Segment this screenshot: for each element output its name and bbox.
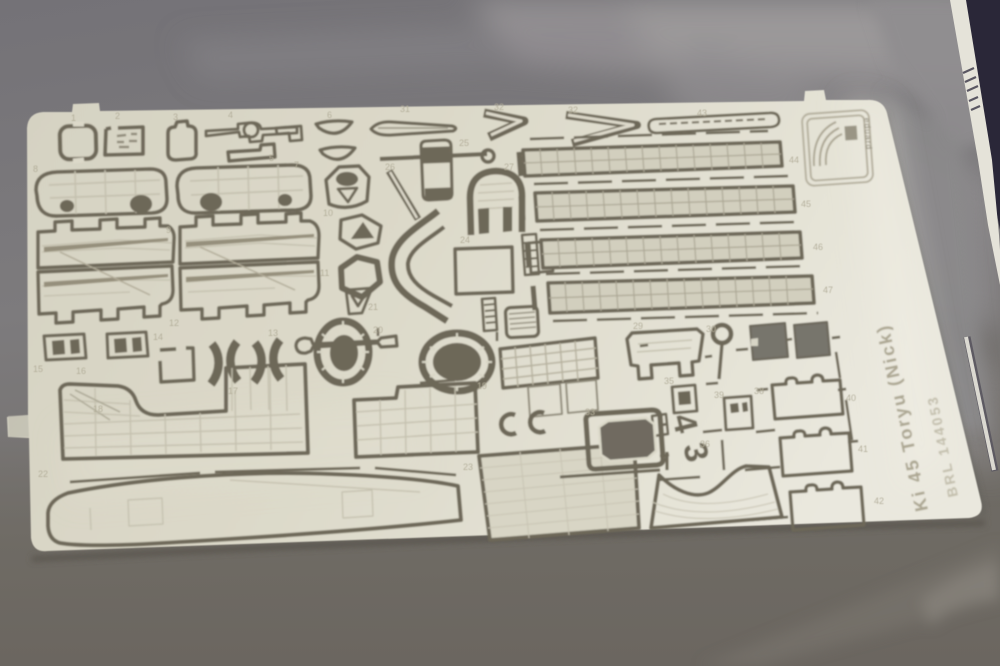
svg-text:4: 4 xyxy=(228,110,233,120)
svg-text:38: 38 xyxy=(754,386,764,396)
svg-text:19: 19 xyxy=(477,381,487,391)
svg-text:10: 10 xyxy=(323,208,333,218)
svg-text:29: 29 xyxy=(633,321,643,331)
svg-text:26: 26 xyxy=(385,162,395,172)
svg-text:24: 24 xyxy=(460,235,470,245)
svg-text:18: 18 xyxy=(93,404,103,414)
svg-text:46: 46 xyxy=(813,242,823,252)
svg-text:12: 12 xyxy=(169,318,179,328)
svg-text:16: 16 xyxy=(76,366,86,376)
svg-text:20: 20 xyxy=(373,325,383,335)
svg-text:3: 3 xyxy=(173,112,178,122)
svg-text:8: 8 xyxy=(33,164,38,174)
svg-text:33: 33 xyxy=(585,407,595,417)
svg-text:45: 45 xyxy=(801,199,811,209)
svg-text:36: 36 xyxy=(700,439,710,449)
svg-text:5: 5 xyxy=(269,153,274,163)
svg-text:14: 14 xyxy=(153,332,163,342)
svg-text:11: 11 xyxy=(320,268,329,278)
svg-text:25: 25 xyxy=(459,138,469,148)
svg-text:42: 42 xyxy=(874,496,884,506)
svg-text:9: 9 xyxy=(166,225,171,235)
svg-text:32: 32 xyxy=(494,102,504,112)
svg-text:39: 39 xyxy=(714,390,724,400)
svg-text:15: 15 xyxy=(33,364,43,374)
svg-text:44: 44 xyxy=(789,155,799,165)
svg-text:21: 21 xyxy=(368,302,378,312)
svg-text:1: 1 xyxy=(71,113,76,123)
svg-text:30: 30 xyxy=(706,324,716,334)
svg-text:22: 22 xyxy=(38,469,48,479)
svg-text:2: 2 xyxy=(115,111,120,121)
svg-text:7: 7 xyxy=(294,160,299,170)
svg-text:6: 6 xyxy=(327,110,332,120)
svg-text:41: 41 xyxy=(858,444,868,454)
svg-text:40: 40 xyxy=(846,393,856,403)
svg-text:27: 27 xyxy=(504,162,514,172)
svg-text:43: 43 xyxy=(697,108,707,118)
svg-text:35: 35 xyxy=(664,376,674,386)
svg-text:31: 31 xyxy=(400,104,410,114)
svg-text:17: 17 xyxy=(228,386,238,396)
svg-text:47: 47 xyxy=(823,285,833,295)
svg-text:32: 32 xyxy=(568,105,578,115)
svg-text:23: 23 xyxy=(463,462,473,472)
svg-text:13: 13 xyxy=(268,328,278,338)
